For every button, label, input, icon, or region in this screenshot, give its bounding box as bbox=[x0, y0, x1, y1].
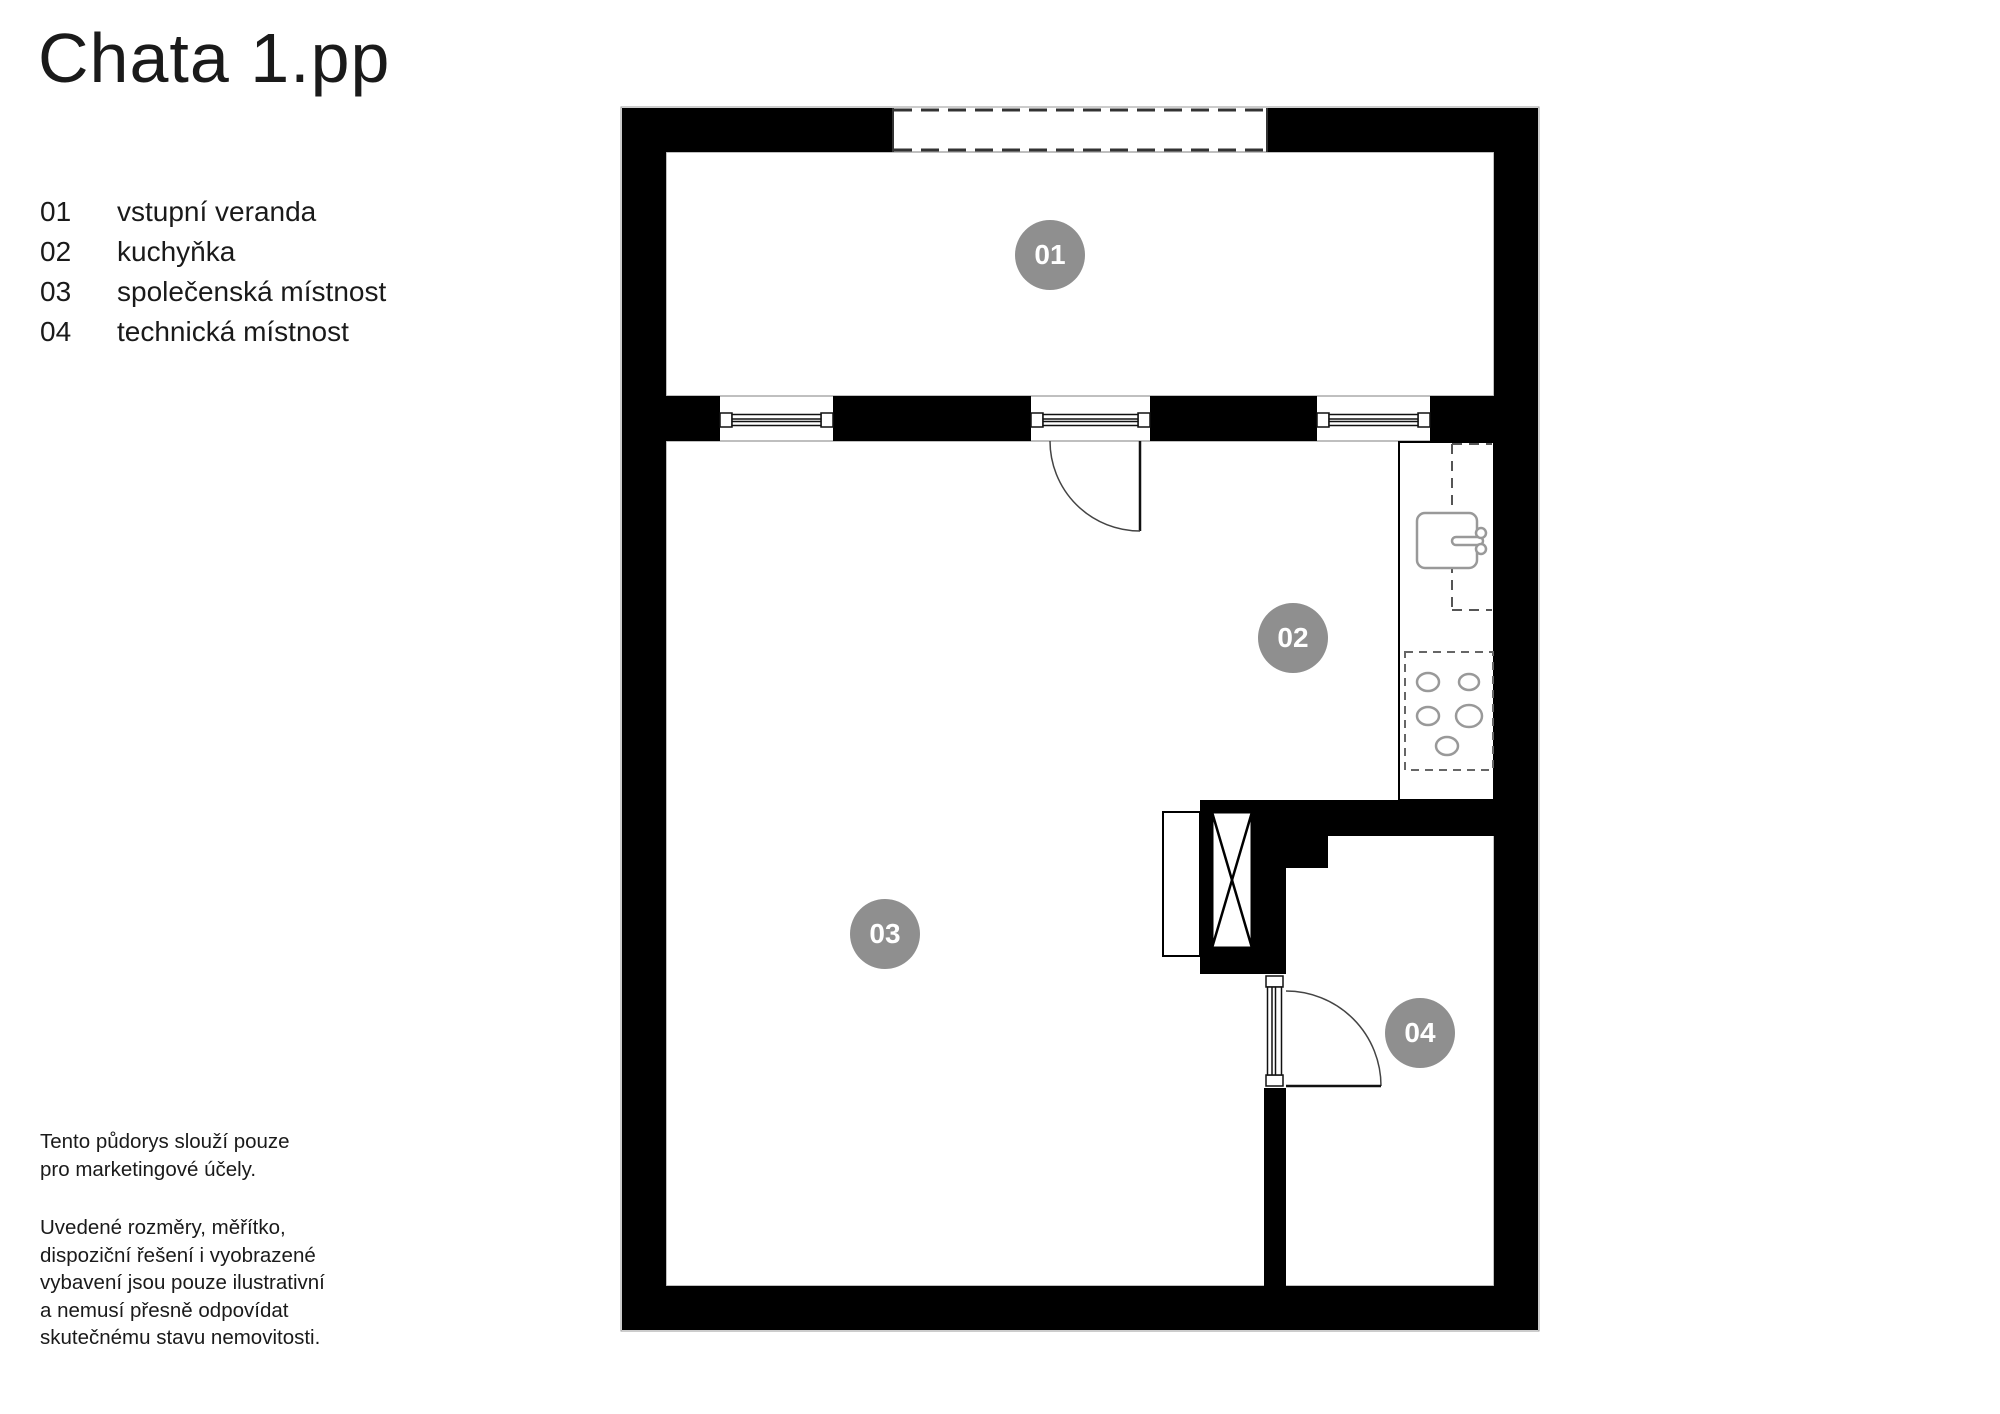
disclaimer-line: Tento půdorys slouží pouze bbox=[40, 1128, 370, 1156]
counter-outline bbox=[1399, 442, 1494, 800]
window-3 bbox=[1317, 413, 1430, 427]
chimney-shaft bbox=[1200, 800, 1286, 974]
disclaimer-paragraph: Uvedené rozměry, měřítko, dispoziční řeš… bbox=[40, 1214, 370, 1352]
disclaimer-line: dispoziční řešení i vyobrazené bbox=[40, 1242, 370, 1270]
porch-opening bbox=[893, 108, 1267, 152]
left-wall bbox=[622, 108, 666, 1330]
veranda-floor bbox=[666, 152, 1494, 396]
disclaimer-line: a nemusí přesně odpovídat bbox=[40, 1297, 370, 1325]
page: Chata 1.pp 01vstupní veranda 02kuchyňka … bbox=[0, 0, 2000, 1414]
disclaimer-line: Uvedené rozměry, měřítko, bbox=[40, 1214, 370, 1242]
room-badge-03: 03 bbox=[850, 899, 920, 969]
disclaimer-line: skutečnému stavu nemovitosti. bbox=[40, 1324, 370, 1352]
room-badge-04: 04 bbox=[1385, 998, 1455, 1068]
main-floor bbox=[666, 441, 1494, 1286]
kitchen-sink bbox=[1417, 513, 1486, 568]
top-wall-left bbox=[622, 108, 892, 152]
faucet-knob bbox=[1476, 544, 1486, 554]
room-badge-02: 02 bbox=[1258, 603, 1328, 673]
window-1 bbox=[720, 413, 833, 427]
floor-plan bbox=[0, 0, 2000, 1414]
faucet-knob bbox=[1476, 528, 1486, 538]
bottom-wall bbox=[622, 1286, 1538, 1330]
disclaimer-line: vybavení jsou pouze ilustrativní bbox=[40, 1269, 370, 1297]
radiator bbox=[1163, 812, 1200, 956]
kitchen-counter bbox=[1399, 442, 1494, 800]
top-wall-right bbox=[1268, 108, 1538, 152]
disclaimer-paragraph: Tento půdorys slouží pouze pro marketing… bbox=[40, 1128, 370, 1183]
disclaimer-line: pro marketingové účely. bbox=[40, 1156, 370, 1184]
partition-wall-03-04 bbox=[1264, 1088, 1286, 1286]
right-wall bbox=[1494, 108, 1538, 1330]
room-badge-01: 01 bbox=[1015, 220, 1085, 290]
window-2-veranda-door bbox=[1031, 413, 1150, 427]
